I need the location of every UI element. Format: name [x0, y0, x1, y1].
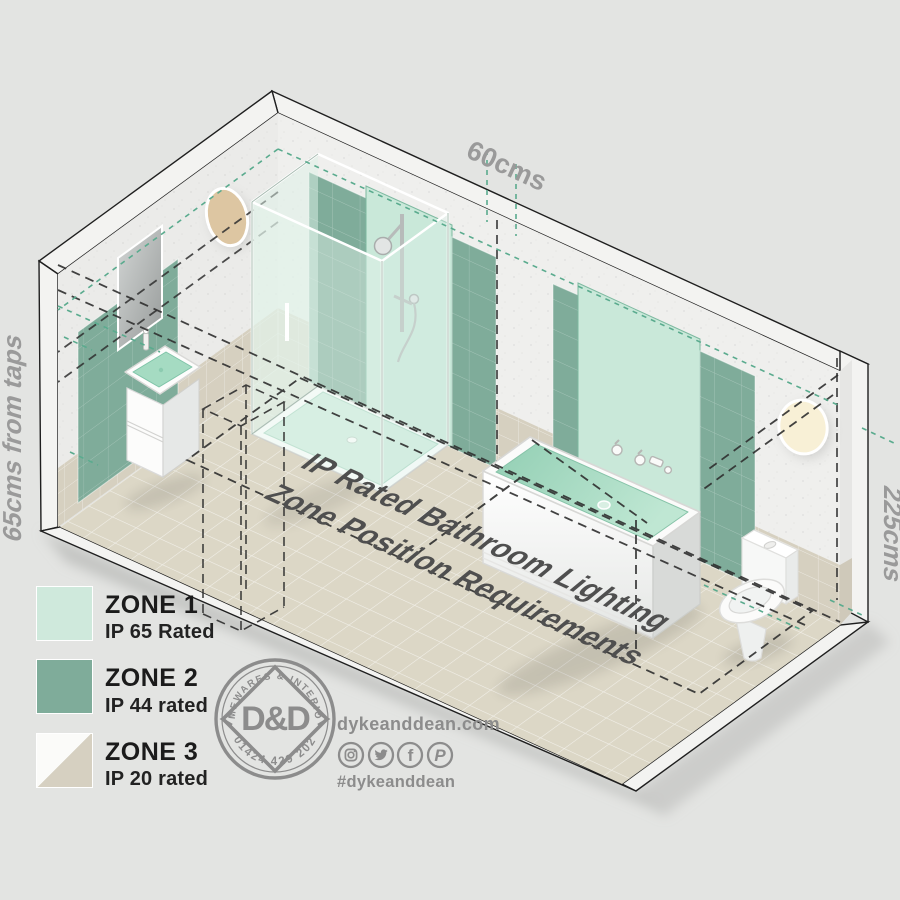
toilet-tank-side	[786, 550, 798, 604]
zone2-swatch	[36, 659, 93, 714]
social-icons: f P	[337, 740, 500, 770]
zone2-label: ZONE 2	[105, 665, 208, 691]
legend-row-zone1: ZONE 1 IP 65 Rated	[36, 586, 215, 644]
zone3-label: ZONE 3	[105, 739, 208, 765]
legend-row-zone2: ZONE 2 IP 44 rated	[36, 659, 215, 717]
zone3-swatch	[36, 733, 93, 788]
svg-text:01424 429 202: 01424 429 202	[231, 734, 319, 768]
logo-monogram: D&D	[241, 700, 310, 738]
bathtub-overflow	[598, 501, 610, 509]
website-url[interactable]: dykeanddean.com	[337, 714, 500, 735]
dimension-label-right: 225cms	[878, 483, 900, 587]
dyke-and-dean-logo: HOMEWARES & INTERIORS 01424 429 202 D&D	[211, 655, 339, 783]
svg-text:P: P	[434, 746, 446, 765]
zone3-rating: IP 20 rated	[105, 768, 208, 791]
zone2-panel-shower-right	[452, 237, 496, 468]
zone-legend: ZONE 1 IP 65 Rated ZONE 2 IP 44 rated ZO…	[36, 586, 215, 806]
logo-phone: 01424 429 202	[231, 734, 319, 768]
zone1-rating: IP 65 Rated	[105, 621, 215, 644]
svg-text:f: f	[408, 746, 414, 765]
facebook-icon[interactable]: f	[398, 743, 422, 767]
pinterest-icon[interactable]: P	[428, 743, 452, 767]
sink-tap	[144, 333, 149, 350]
legend-row-zone3: ZONE 3 IP 20 rated	[36, 733, 215, 791]
left-wall-end-face	[39, 261, 58, 531]
brand-block: dykeanddean.com f	[337, 714, 500, 792]
zone2-rating: IP 44 rated	[105, 695, 208, 718]
zone1-label: ZONE 1	[105, 592, 215, 618]
twitter-icon[interactable]	[369, 743, 393, 767]
hashtag[interactable]: #dykeanddean	[337, 773, 500, 792]
instagram-icon[interactable]	[339, 743, 363, 767]
dimension-label-left: 65cms from taps	[0, 330, 27, 545]
zone1-swatch	[36, 586, 93, 641]
